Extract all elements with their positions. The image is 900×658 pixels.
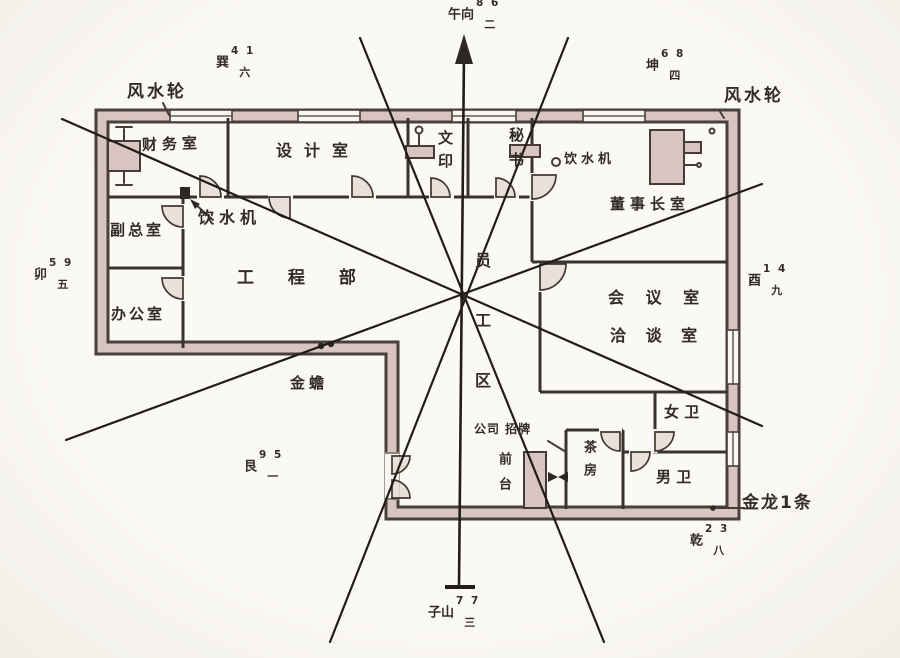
palace-stars: 2 3	[705, 523, 729, 535]
palace-marking-top-right: 坤6 8 四	[646, 55, 683, 81]
room-label-staff-area: 员工区	[473, 252, 489, 432]
room-label-secretary: 秘书	[508, 127, 523, 177]
palace-marking-bottom: 子山7 7 三	[428, 602, 478, 628]
palace-direction: 坤	[646, 58, 659, 73]
annotation-company-sign: 公司 招牌	[474, 423, 531, 435]
palace-marking-left: 卯5 9 五	[34, 264, 71, 290]
palace-marking-right: 酉1 4 九	[748, 270, 785, 296]
room-label-design: 设计室	[276, 143, 360, 159]
annotation-golden-dragon: 金龙1条	[742, 495, 813, 512]
room-label-womens-wc: 女 卫	[664, 405, 699, 420]
room-label-tea-room: 茶房	[582, 440, 595, 486]
room-label-office: 办公室	[111, 307, 165, 322]
palace-direction: 卯	[34, 267, 47, 282]
palace-stars: 1 4	[763, 263, 787, 275]
direction-arrow-icon	[455, 34, 473, 64]
room-label-negotiation: 洽 谈 室	[610, 328, 704, 344]
annotation-fengshui-wheel-right: 风水轮	[724, 88, 784, 105]
room-label-water-dispenser-right: 饮水机	[564, 153, 615, 166]
room-label-meeting: 会 议 室	[608, 290, 707, 306]
golden-dragon-icon	[710, 505, 716, 511]
palace-stars: 8 6	[476, 0, 500, 9]
room-label-mens-wc: 男 卫	[656, 470, 691, 485]
palace-marking-bottom-left: 艮9 5 一	[244, 456, 281, 482]
room-label-water-dispenser-left: 饮水机	[198, 210, 261, 226]
annotation-fengshui-wheel-left: 风水轮	[127, 84, 187, 101]
floorplan-canvas: 风水轮 风水轮 财务室 设计室 文印 秘书 饮水机 董事长室 饮水机 副总室 办…	[0, 0, 900, 658]
palace-direction: 艮	[244, 459, 257, 474]
palace-stars: 6 8	[661, 48, 685, 60]
palace-marking-top: 午向8 6 二	[448, 4, 498, 30]
palace-marking-top-left: 巽4 1 六	[216, 52, 253, 78]
palace-stars: 4 1	[231, 45, 255, 57]
room-label-engineering: 工 程 部	[237, 270, 370, 287]
palace-direction: 酉	[748, 273, 761, 288]
palace-direction: 午向	[448, 7, 474, 22]
room-label-finance: 财务室	[142, 136, 203, 153]
water-dispenser-right-icon	[552, 158, 560, 166]
palace-stars: 5 9	[49, 257, 73, 269]
water-dispenser-left-icon	[180, 187, 190, 199]
annotation-golden-toad: 金蟾	[290, 376, 328, 391]
room-label-chairman: 董事长室	[610, 197, 690, 212]
palace-stars: 9 5	[259, 449, 283, 461]
palace-direction: 巽	[216, 55, 229, 70]
palace-stars: 7 7	[456, 595, 480, 607]
palace-direction: 乾	[690, 533, 703, 548]
palace-marking-bottom-right: 乾2 3 八	[690, 530, 727, 556]
room-label-print: 文印	[437, 130, 452, 176]
palace-direction: 子山	[428, 605, 454, 620]
room-label-reception: 前台	[497, 452, 510, 502]
room-label-vice-gm: 副总室	[110, 223, 164, 238]
